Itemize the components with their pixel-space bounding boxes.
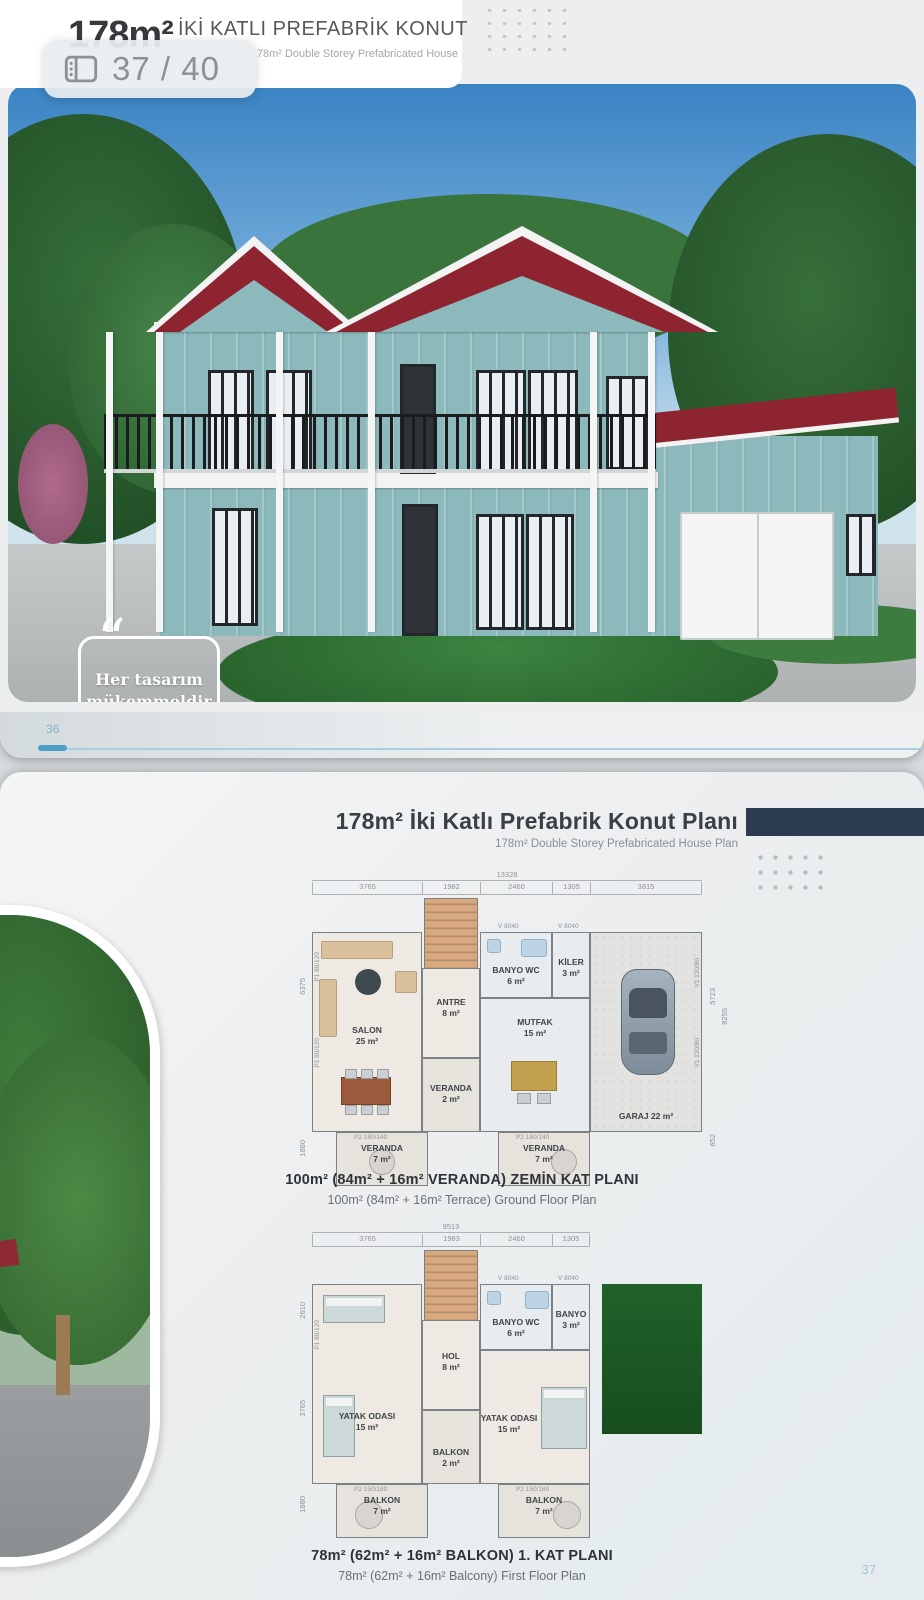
page1-title: İKİ KATLI PREFABRİK KONUT xyxy=(178,18,458,41)
window-label: V1 120/80 xyxy=(694,958,701,988)
page-number: 36 xyxy=(46,722,59,736)
arch-tree-trunk xyxy=(56,1315,70,1395)
room-name: GARAJ xyxy=(619,1111,649,1121)
room-area: 25 m² xyxy=(356,1036,378,1046)
pink-shrub xyxy=(18,424,88,544)
room-area: 8 m² xyxy=(442,1008,459,1018)
porch-column-4 xyxy=(368,332,375,632)
room-mutfak: MUTFAK15 m² xyxy=(480,998,590,1132)
dim-line-total xyxy=(312,1232,590,1233)
room-kiler: KİLER3 m² xyxy=(552,932,590,998)
room-hol: HOL8 m² xyxy=(422,1320,480,1410)
room-antre: ANTRE8 m² xyxy=(422,968,480,1058)
caption-tr: 100m² (84m² + 16m² VERANDA) ZEMİN KAT PL… xyxy=(62,1172,862,1188)
dim-seg-label: 1305 xyxy=(553,1234,589,1243)
room-salon: SALON25 m² xyxy=(312,932,422,1132)
dim-seg-label: 3765 xyxy=(313,882,422,891)
room-name: KİLER xyxy=(558,957,584,967)
left-dim: 1880 xyxy=(298,1496,307,1513)
caption-tr: 78m² (62m² + 16m² BALKON) 1. KAT PLANI xyxy=(62,1548,862,1564)
first-floor-plan: 9513 3765 1983 2460 1305 YATAK ODASI15 m… xyxy=(302,1220,712,1520)
page-38-plans: 178m² İki Katlı Prefabrik Konut Planı 17… xyxy=(0,772,924,1600)
catalog-viewer: 178m² İKİ KATLI PREFABRİK KONUT 178m² Do… xyxy=(0,0,924,1600)
room-name: ANTRE xyxy=(436,997,465,1007)
room-name: BANYO WC xyxy=(492,965,539,975)
room-name: HOL xyxy=(442,1351,460,1361)
room-area: 3 m² xyxy=(562,968,579,978)
window-label: P2 150/180 xyxy=(354,1486,387,1493)
page2-title: 178m² İki Katlı Prefabrik Konut Planı xyxy=(138,808,738,835)
room-area: 2 m² xyxy=(442,1458,459,1468)
page-number: 37 xyxy=(862,1562,876,1577)
room-name: SALON xyxy=(352,1025,382,1035)
dim-seg: 3765 xyxy=(312,1234,422,1247)
room-name: MUTFAK xyxy=(517,1017,552,1027)
garage-side-window xyxy=(846,514,876,576)
porch-column-2 xyxy=(156,332,163,632)
lower-window-3 xyxy=(526,514,574,630)
room-area: 7 m² xyxy=(373,1506,390,1516)
quote-line2: mükemmeldir xyxy=(81,691,217,702)
page1-footer: 36 xyxy=(0,712,924,758)
dim-seg: 2460 xyxy=(480,882,552,895)
room-name: VERANDA xyxy=(430,1083,472,1093)
right-dim: 8255 xyxy=(720,1008,729,1025)
room-name: BANYO WC xyxy=(492,1317,539,1327)
room-name: VERANDA xyxy=(361,1143,403,1153)
left-dim: 1880 xyxy=(298,1140,307,1157)
progress-track[interactable] xyxy=(38,748,924,750)
room-banyo-wc: BANYO WC6 m² xyxy=(480,932,552,998)
left-arch-photo xyxy=(0,905,160,1567)
room-area: 7 m² xyxy=(535,1154,552,1164)
arch-concrete xyxy=(0,1385,150,1557)
room-yatak-left: YATAK ODASI15 m² xyxy=(312,1284,422,1484)
dim-total: 9513 xyxy=(312,1222,590,1231)
room-area: 6 m² xyxy=(507,1328,524,1338)
dim-seg-label: 2460 xyxy=(481,1234,552,1243)
dim-seg-label: 1305 xyxy=(553,882,590,891)
room-banyo-wc: BANYO WC6 m² xyxy=(480,1284,552,1350)
room-area: 7 m² xyxy=(535,1506,552,1516)
porch-column-5 xyxy=(590,332,597,632)
caption-en: 78m² (62m² + 16m² Balcony) First Floor P… xyxy=(62,1569,862,1583)
page-37: 178m² İKİ KATLI PREFABRİK KONUT 178m² Do… xyxy=(0,0,924,758)
left-dim: 3765 xyxy=(298,1400,307,1417)
window-label: P2 180/140 xyxy=(516,1134,549,1141)
room-name: YATAK ODASI xyxy=(481,1413,538,1423)
dot-grid xyxy=(753,850,827,900)
dim-seg: 1982 xyxy=(422,882,480,895)
first-floor-caption: 78m² (62m² + 16m² BALKON) 1. KAT PLANI 7… xyxy=(62,1548,862,1583)
page-indicator-label: 37 / 40 xyxy=(112,50,220,88)
room-area: 8 m² xyxy=(442,1362,459,1372)
dim-seg-label: 3815 xyxy=(591,882,701,891)
room-area: 22 m² xyxy=(651,1111,673,1121)
window-label: V 8040 xyxy=(498,923,519,930)
page2-subtitle: 178m² Double Storey Prefabricated House … xyxy=(238,838,738,850)
room-area: 6 m² xyxy=(507,976,524,986)
dim-seg: 3815 xyxy=(590,882,702,895)
lower-window-1 xyxy=(212,508,258,626)
dot-grid xyxy=(482,4,568,52)
entry-door xyxy=(402,504,438,636)
right-dim: 652 xyxy=(708,1134,717,1147)
dim-seg: 1305 xyxy=(552,1234,590,1247)
room-area: 15 m² xyxy=(524,1028,546,1038)
room-name: BALKON xyxy=(526,1495,562,1505)
dim-seg: 1305 xyxy=(552,882,590,895)
accent-bar xyxy=(746,808,924,836)
room-balkon-2: BALKON2 m² xyxy=(422,1410,480,1484)
porch-column-3 xyxy=(276,332,283,632)
quote-line1: Her tasarım xyxy=(81,669,217,691)
room-veranda-2: VERANDA2 m² xyxy=(422,1058,480,1132)
dim-seg: 3765 xyxy=(312,882,422,895)
ground-floor-plan: 13328 3765 1982 2460 1305 3815 SALON25 m… xyxy=(302,868,712,1168)
window-label: P2 150/180 xyxy=(516,1486,549,1493)
balcony-railing xyxy=(104,414,656,473)
room-area: 3 m² xyxy=(562,1320,579,1330)
room-garaj: GARAJ 22 m² xyxy=(590,932,702,1132)
window-label: V 8040 xyxy=(558,1275,579,1282)
dim-total: 13328 xyxy=(312,870,702,879)
lower-window-2 xyxy=(476,514,524,630)
room-yatak-right: YATAK ODASI15 m² xyxy=(480,1350,590,1484)
progress-thumb[interactable] xyxy=(38,745,67,751)
house-render-photo: “ Her tasarım mükemmeldir ” xyxy=(8,84,916,702)
right-dim: 5723 xyxy=(708,988,717,1005)
window-label: P1 80/120 xyxy=(314,952,321,982)
dim-line-total xyxy=(312,880,702,881)
window-label: P1 80/120 xyxy=(314,1038,321,1068)
dim-segments: 3765 1983 2460 1305 xyxy=(312,1234,590,1247)
dim-seg-label: 1982 xyxy=(423,882,480,891)
room-area: 15 m² xyxy=(498,1424,520,1434)
room-name: VERANDA xyxy=(523,1143,565,1153)
quote-box: “ Her tasarım mükemmeldir ” xyxy=(78,636,220,702)
room-name: YATAK ODASI xyxy=(339,1411,396,1421)
room-name: BALKON xyxy=(364,1495,400,1505)
porch-column-1 xyxy=(106,332,113,632)
window-label: V1 120/80 xyxy=(694,1038,701,1068)
porch-column-6 xyxy=(648,332,655,632)
dim-seg-label: 2460 xyxy=(481,882,552,891)
left-dim: 6375 xyxy=(298,978,307,995)
left-dim: 2610 xyxy=(298,1302,307,1319)
dim-seg-label: 3765 xyxy=(313,1234,422,1243)
booklet-icon xyxy=(64,55,98,83)
open-quote-icon: “ xyxy=(97,613,126,669)
dim-segments: 3765 1982 2460 1305 3815 xyxy=(312,882,702,895)
page-indicator[interactable]: 37 / 40 xyxy=(44,40,256,98)
room-name: BALKON xyxy=(433,1447,469,1457)
quote-text: Her tasarım mükemmeldir xyxy=(81,669,217,702)
stairs xyxy=(424,1250,478,1322)
green-roof-patch xyxy=(602,1284,702,1434)
window-label: P1 80/120 xyxy=(314,1320,321,1350)
dim-seg: 1983 xyxy=(422,1234,480,1247)
ground-floor-caption: 100m² (84m² + 16m² VERANDA) ZEMİN KAT PL… xyxy=(62,1172,862,1207)
window-label: V 8040 xyxy=(558,923,579,930)
window-label: P2 180/140 xyxy=(354,1134,387,1141)
floor-divider-band xyxy=(154,472,658,488)
room-name: BANYO xyxy=(556,1309,587,1319)
garage-door xyxy=(680,512,834,640)
stairs xyxy=(424,898,478,970)
room-banyo: BANYO3 m² xyxy=(552,1284,590,1350)
room-area: 2 m² xyxy=(442,1094,459,1104)
caption-en: 100m² (84m² + 16m² Terrace) Ground Floor… xyxy=(62,1193,862,1207)
room-area: 7 m² xyxy=(373,1154,390,1164)
dim-seg-label: 1983 xyxy=(423,1234,480,1243)
window-label: V 8040 xyxy=(498,1275,519,1282)
dim-seg: 2460 xyxy=(480,1234,552,1247)
room-area: 15 m² xyxy=(356,1422,378,1432)
